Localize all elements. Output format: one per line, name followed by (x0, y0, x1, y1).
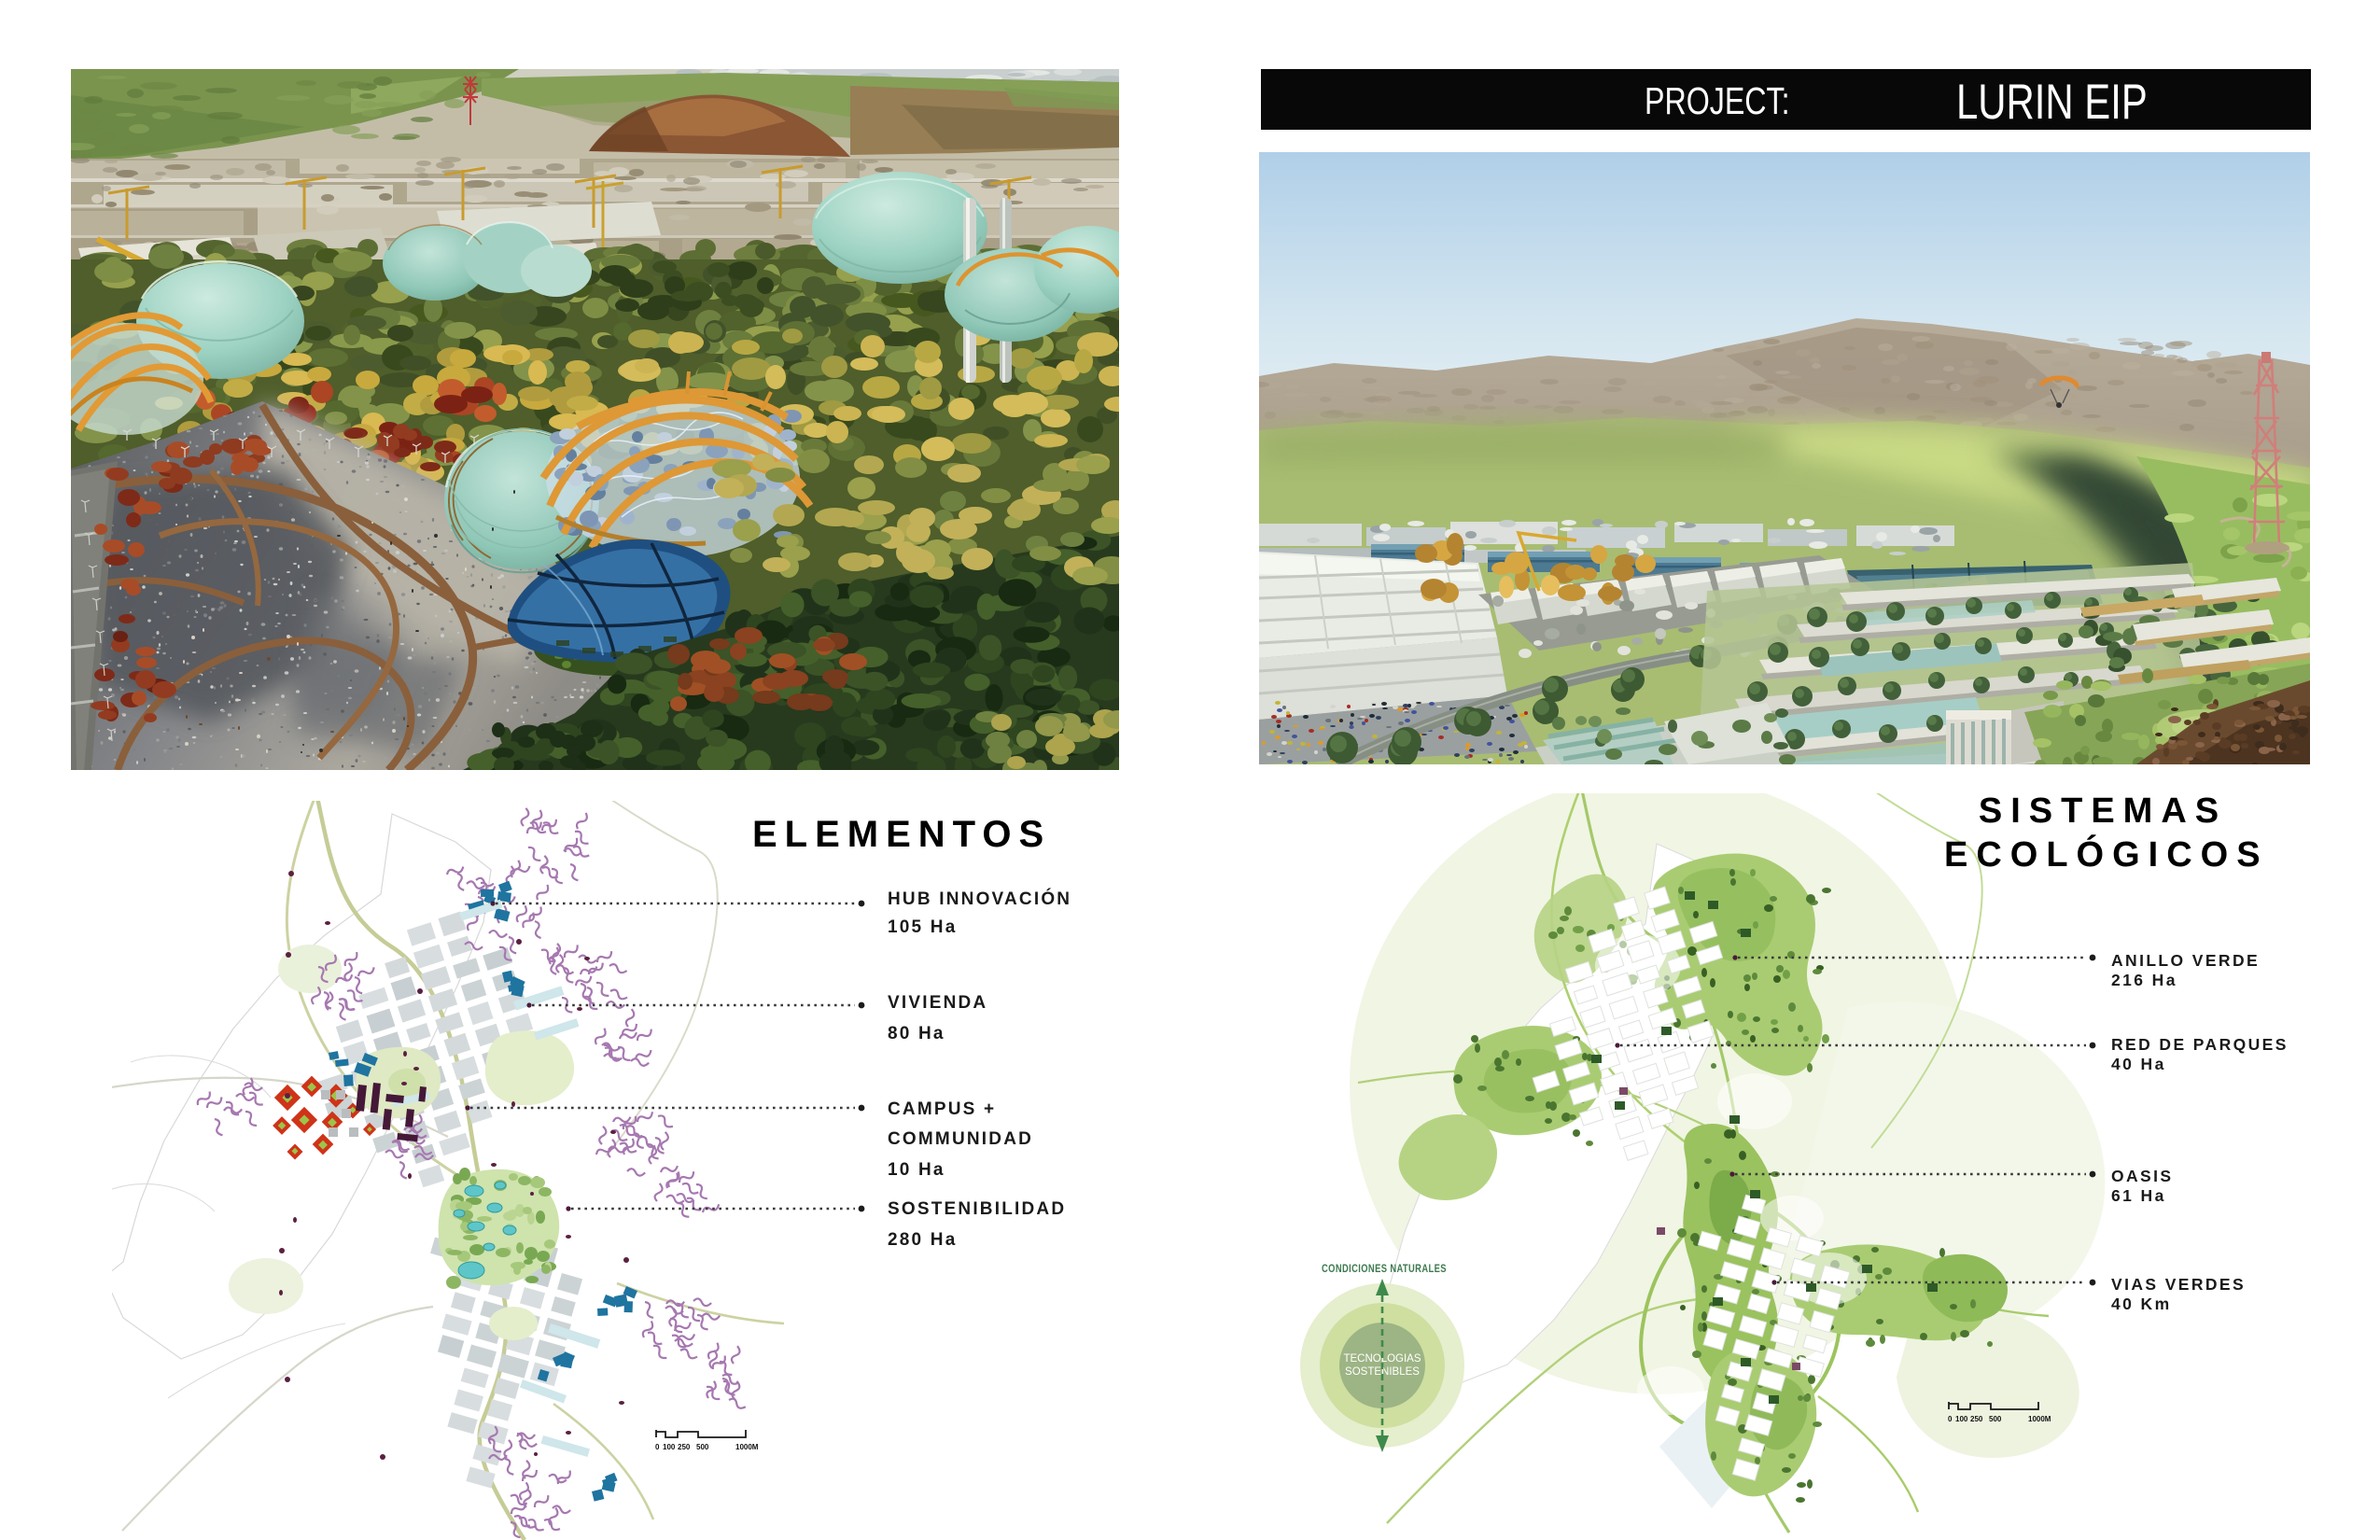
svg-text:1000M: 1000M (2028, 1415, 2051, 1423)
svg-text:1000M: 1000M (735, 1443, 759, 1451)
svg-text:250: 250 (678, 1443, 691, 1451)
svg-text:0: 0 (1948, 1415, 1953, 1423)
svg-text:100: 100 (663, 1443, 676, 1451)
svg-text:250: 250 (1970, 1415, 1983, 1423)
svg-text:100: 100 (1955, 1415, 1968, 1423)
svg-text:0: 0 (655, 1443, 660, 1451)
svg-text:500: 500 (1989, 1415, 2002, 1423)
svg-text:500: 500 (696, 1443, 709, 1451)
